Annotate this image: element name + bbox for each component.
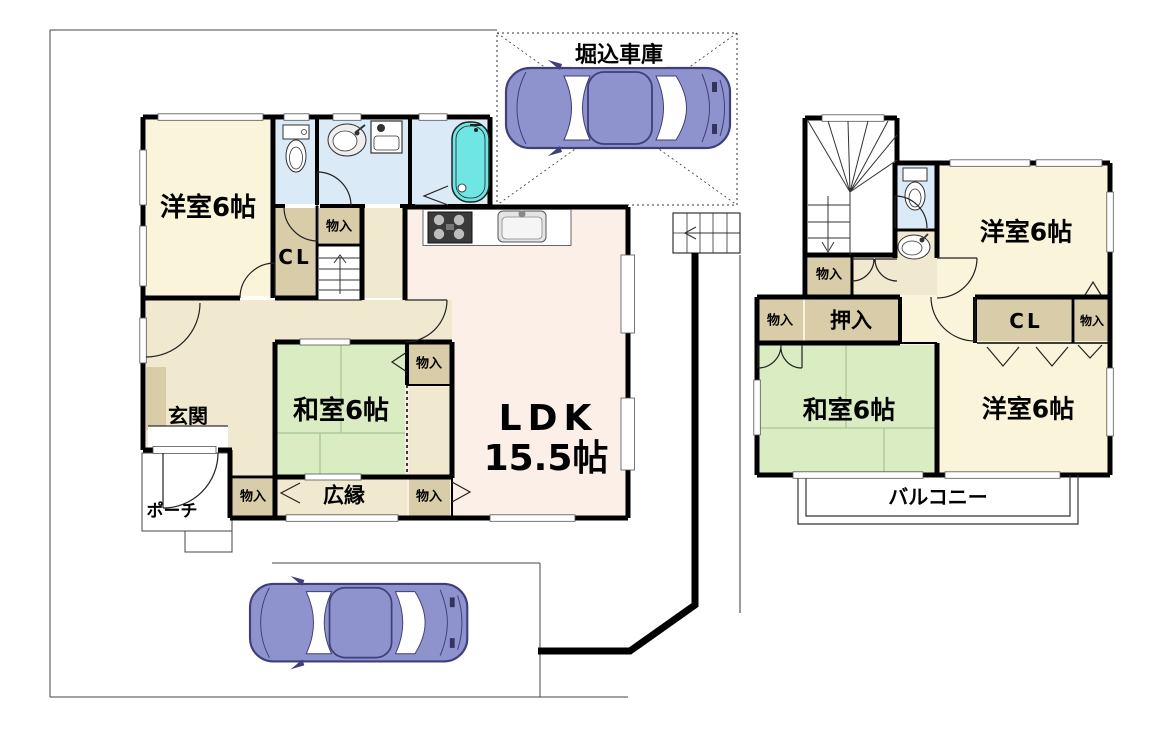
room-label-ldk-size: 15.5帖 xyxy=(484,441,609,477)
label-storage-upper: 物入 xyxy=(416,358,442,371)
room-label-porch: ポーチ xyxy=(147,504,198,521)
label-storage-lower: 物入 xyxy=(416,491,442,504)
bathtub-icon xyxy=(452,122,489,202)
floor-plan: 堀込車庫 洋室6帖 CL 物入 和室6帖 物入 物入 物入 広縁 玄関 ポーチ … xyxy=(0,0,1174,731)
room-label-japanese-2f: 和室6帖 xyxy=(803,398,895,423)
room-label-cl-1f: CL xyxy=(278,247,311,267)
exterior-steps xyxy=(673,213,740,253)
room-label-entrance: 玄関 xyxy=(168,406,208,426)
label-storage-left-2f: 物入 xyxy=(767,315,793,328)
hall-1f-fill3 xyxy=(230,342,275,477)
corridor-1f-fill xyxy=(364,208,403,298)
washbasin-icon-1f xyxy=(328,124,366,156)
garage-car-icon xyxy=(506,60,730,156)
washing-machine-icon xyxy=(371,121,402,153)
room-label-oshiire: 押入 xyxy=(830,311,872,332)
porch-step xyxy=(185,531,232,552)
room-label-western-bottom-2f: 洋室6帖 xyxy=(982,397,1074,422)
room-label-cl-2f: CL xyxy=(1009,311,1042,331)
kitchen-counter xyxy=(423,210,571,246)
kitchen-sink-icon xyxy=(498,211,546,243)
floor-plan-drawing xyxy=(0,0,1174,731)
room-label-balcony: バルコニー xyxy=(888,487,988,507)
room-label-western-top-2f: 洋室6帖 xyxy=(980,220,1072,245)
room-label-western-1f: 洋室6帖 xyxy=(160,195,256,221)
room-label-japanese-1f: 和室6帖 xyxy=(293,398,389,424)
hall-2f-fill xyxy=(854,257,895,295)
garage-label: 堀込車庫 xyxy=(572,45,666,67)
room-label-veranda: 広縁 xyxy=(323,486,365,507)
label-storage-by-stairs: 物入 xyxy=(326,221,352,234)
veranda-strip-fill xyxy=(409,387,450,475)
label-storage-right-2f: 物入 xyxy=(1080,315,1104,327)
label-storage-by-veranda: 物入 xyxy=(240,491,266,504)
kitchen-stove-icon xyxy=(428,212,472,243)
label-storage-under-stairs-2f: 物入 xyxy=(816,269,842,282)
driveway-car-icon xyxy=(250,576,467,669)
hall-1f-fill xyxy=(146,300,452,342)
room-label-ldk: LDK xyxy=(499,401,598,437)
shoe-cabinet-fill xyxy=(146,367,166,430)
